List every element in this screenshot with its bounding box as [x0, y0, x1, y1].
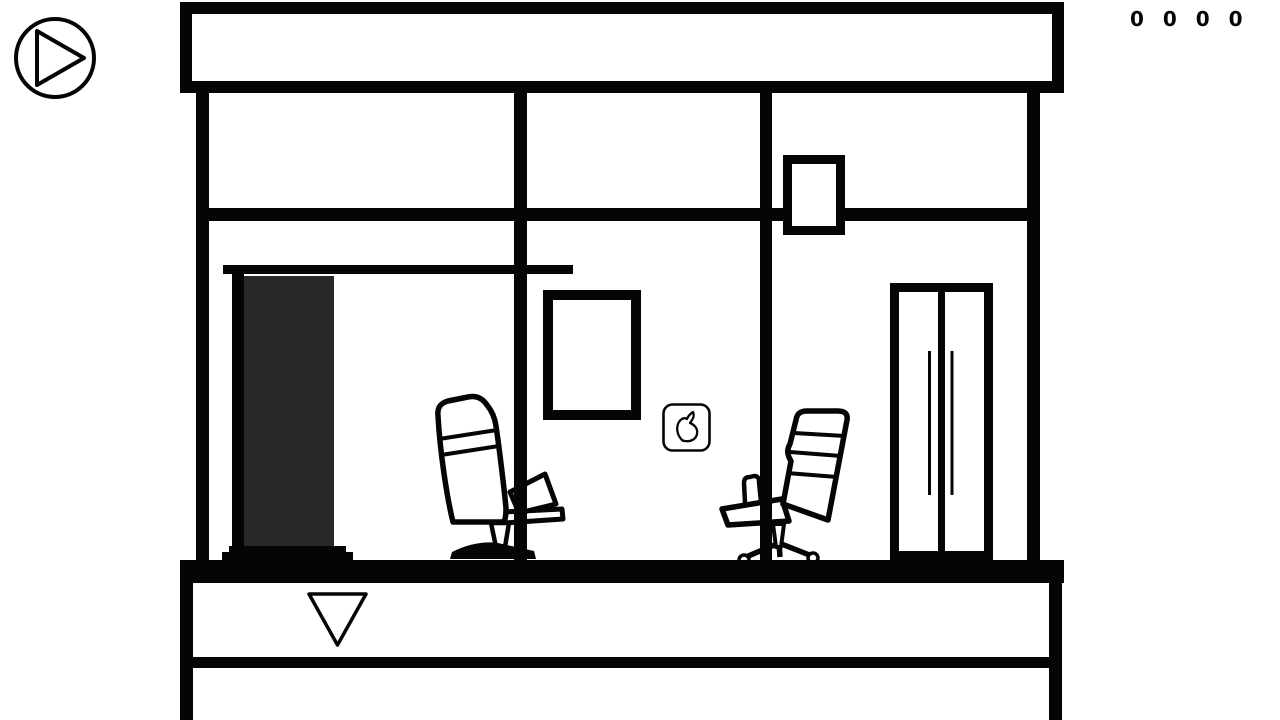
rabbit-icon-button[interactable]: [664, 405, 710, 451]
right-wall: [1027, 93, 1040, 560]
double-door[interactable]: [895, 288, 989, 556]
floor: [180, 560, 1064, 583]
left-wall: [196, 93, 209, 560]
counter-display: 0 0 0 0: [1130, 7, 1249, 31]
basement-left-wall: [180, 577, 193, 720]
game-stage: down-arrow-icon 0 0 0 0: [0, 0, 1280, 720]
chair-right-armrest: [744, 476, 761, 503]
ceiling-beam: [196, 208, 1040, 221]
support-column-left: [514, 93, 527, 560]
chair-right-seat: [722, 499, 789, 525]
office-chair-right[interactable]: [722, 411, 847, 565]
door-handle-left[interactable]: [928, 351, 931, 495]
play-button[interactable]: [16, 19, 94, 97]
picture-frame[interactable]: [548, 295, 636, 415]
wall-window[interactable]: [788, 160, 841, 231]
chair-right-pedestal: [773, 524, 784, 547]
support-column-right: [760, 93, 772, 560]
chair-left-backrest: [438, 396, 506, 522]
dark-door-panel[interactable]: [244, 276, 334, 548]
down-arrow-button[interactable]: [309, 594, 366, 645]
office-chair-left[interactable]: [438, 396, 563, 559]
doorway-jamb: [232, 274, 244, 553]
roof-band: [186, 8, 1058, 87]
rabbit-icon-frame[interactable]: [664, 405, 710, 451]
double-door-divider: [938, 292, 945, 552]
door-handle-right[interactable]: [951, 351, 954, 495]
room-scene: down-arrow-icon: [0, 0, 1280, 720]
basement-right-wall: [1049, 577, 1062, 720]
basement-divider: [193, 657, 1049, 668]
chair-right-backrest: [783, 411, 847, 520]
